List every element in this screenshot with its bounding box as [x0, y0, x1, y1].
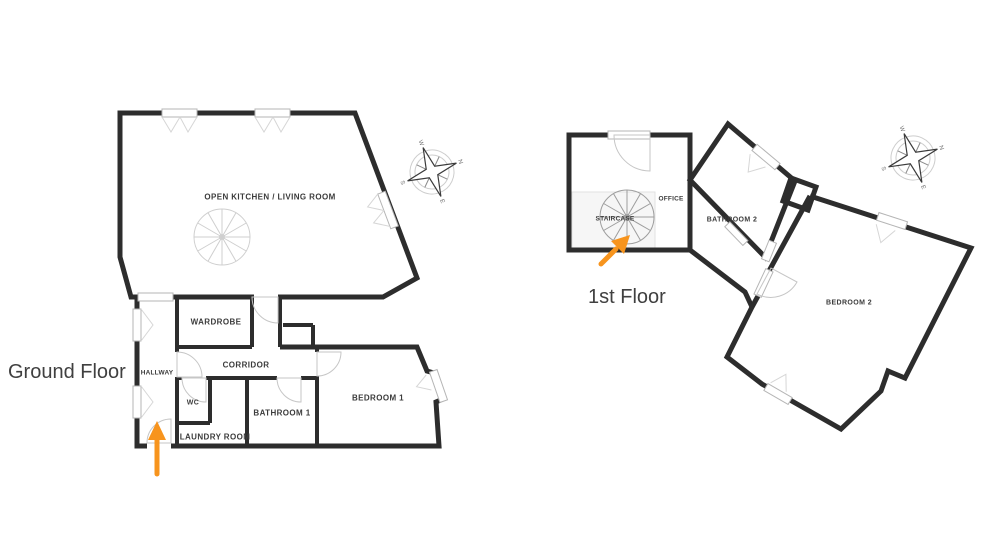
- room-label-open-kitchen-living-room: OPEN KITCHEN / LIVING ROOM: [204, 193, 335, 202]
- compass-east-label: E: [919, 185, 926, 191]
- compass-west-label: W: [417, 140, 425, 148]
- room-label-bedroom-1: BEDROOM 1: [352, 394, 404, 403]
- spiral-staircase-icon-ground: [194, 209, 250, 265]
- kitchen-walls: [120, 113, 417, 297]
- room-label-laundry-room: LAUNDRY ROOM: [180, 433, 251, 442]
- compass-icon-ground: N E S W: [388, 129, 474, 215]
- landing-wall: [690, 250, 752, 307]
- room-label-wc: WC: [187, 400, 199, 407]
- compass-north-label: N: [937, 145, 944, 151]
- ground-floor-plan: N E S W: [120, 109, 474, 474]
- compass-south-label: S: [879, 166, 886, 172]
- bedroom2-walls: [727, 196, 971, 429]
- room-label-corridor: CORRIDOR: [223, 361, 270, 370]
- room-label-bedroom-2: BEDROOM 2: [826, 300, 872, 307]
- compass-west-label: W: [898, 126, 906, 134]
- room-label-wardrobe: WARDROBE: [191, 318, 242, 327]
- compass-north-label: N: [456, 159, 463, 165]
- floorplan-drawing: N E S W: [0, 0, 990, 557]
- room-label-staircase: STAIRCASE: [596, 216, 635, 223]
- compass-icon-first: N E S W: [869, 115, 955, 201]
- first-floor-title: 1st Floor: [588, 286, 666, 309]
- first-floor-openings: [608, 131, 908, 404]
- room-label-bathroom-1: BATHROOM 1: [253, 409, 310, 418]
- room-label-hallway: HALLWAY: [141, 370, 174, 377]
- compass-east-label: E: [438, 199, 445, 205]
- floorplan-image: N E S W: [0, 0, 990, 557]
- room-label-office: OFFICE: [658, 196, 683, 203]
- first-floor-plan: N E S W: [569, 115, 971, 429]
- room-label-bathroom-2: BATHROOM 2: [707, 217, 758, 224]
- ground-floor-title: Ground Floor: [8, 361, 126, 384]
- compass-south-label: S: [398, 180, 405, 186]
